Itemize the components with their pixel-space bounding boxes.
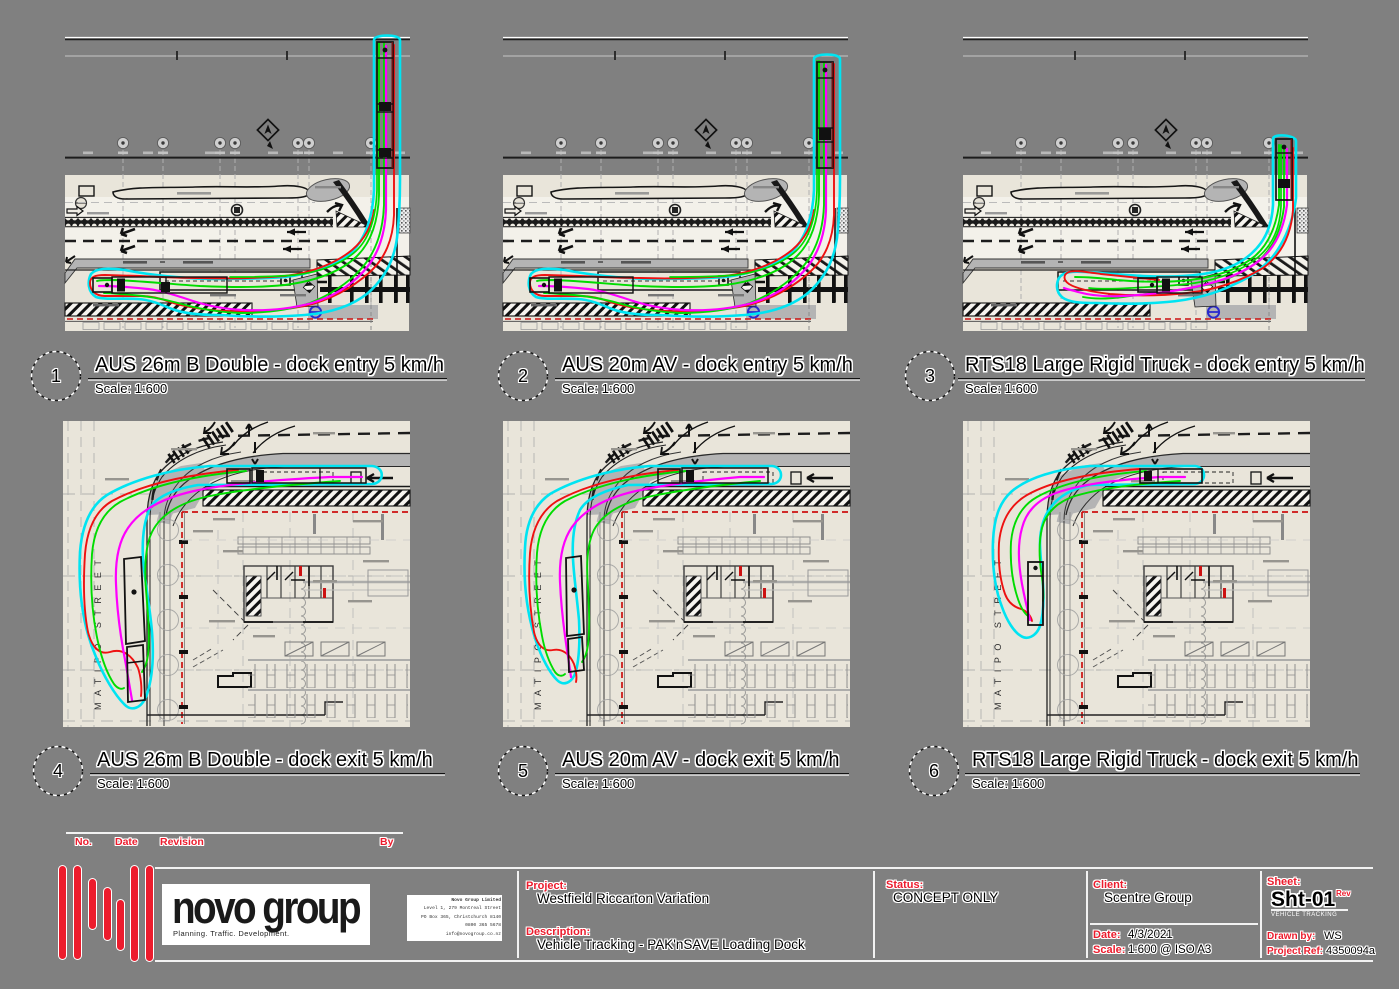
svg-text:MATIPO STREET: MATIPO STREET [93,554,103,710]
